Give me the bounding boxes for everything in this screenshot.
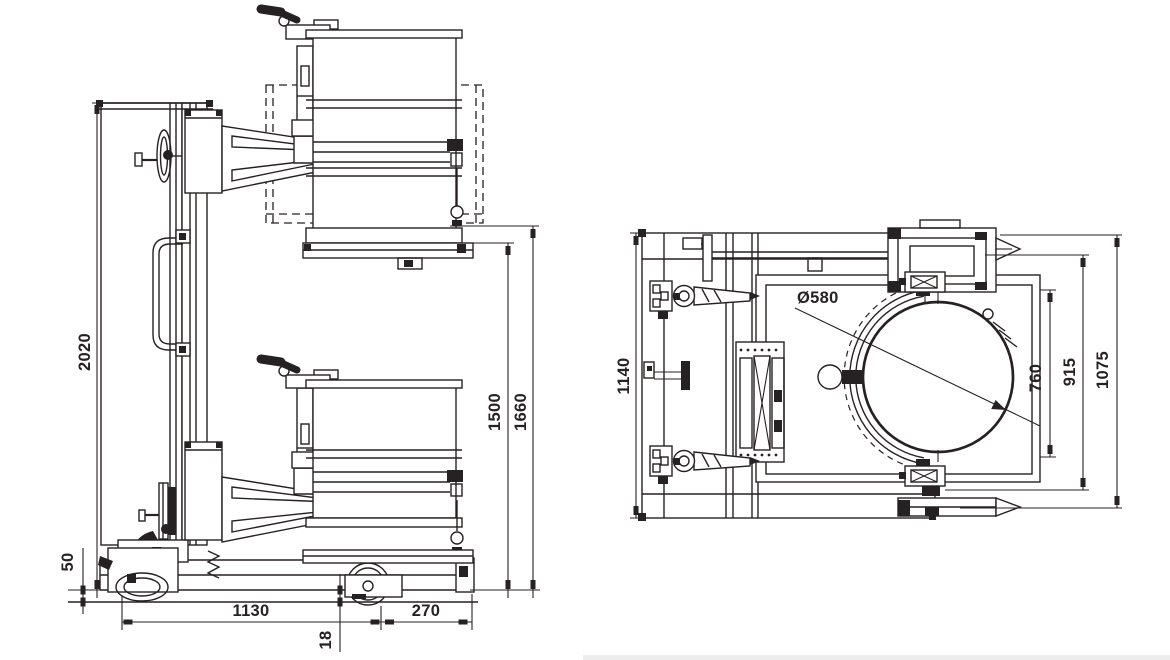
carriage-block: [736, 342, 784, 462]
dim-overall-height: 2020: [68, 103, 104, 598]
dim-fork-overhang: 270: [381, 594, 472, 630]
dim-label-760: 760: [1027, 364, 1045, 392]
dim-label-1140: 1140: [615, 358, 633, 395]
dim-chassis-clearance: 50: [59, 548, 86, 614]
upper-drum: [303, 30, 473, 269]
fork-tip-bottom: [996, 498, 1020, 516]
top-view: Ø580 1140 760 915 1075: [615, 220, 1122, 521]
footer-strip: [583, 655, 1170, 660]
front-caster-wheel: [98, 548, 178, 601]
dim-label-2020: 2020: [76, 333, 94, 371]
dim-label-50: 50: [59, 553, 77, 572]
dim-label-1500: 1500: [486, 393, 504, 431]
technical-drawing-canvas: 2020 50 1130 270 18: [0, 0, 1170, 660]
dim-lowered-clearance: 18: [317, 574, 343, 652]
dim-label-1075: 1075: [1094, 351, 1112, 389]
dim-label-diameter: Ø580: [797, 289, 839, 307]
side-view: 2020 50 1130 270 18: [59, 9, 540, 652]
dim-label-18: 18: [317, 631, 335, 650]
dim-label-915: 915: [1061, 358, 1079, 386]
rear-wheel: [345, 563, 402, 605]
dim-label-1660: 1660: [512, 393, 530, 431]
lower-drum: [303, 380, 473, 563]
dim-label-1130: 1130: [233, 602, 270, 620]
dim-label-270: 270: [412, 602, 440, 620]
